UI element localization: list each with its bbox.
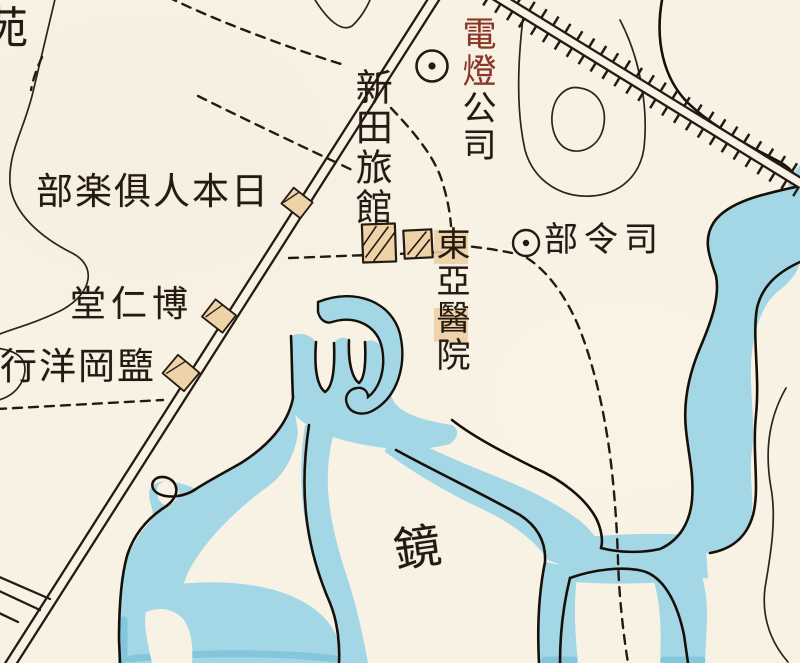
railway-embankment [488, 0, 800, 188]
label-japanese-club: 部楽俱人本日 [36, 172, 270, 211]
club-building-marker [281, 188, 312, 219]
contour-oval [552, 87, 604, 151]
label-river-name: 鏡 [391, 521, 444, 577]
label-trading-company: 行洋岡盬 [0, 347, 156, 386]
label-nitta-inn: 新田旅館 [351, 68, 390, 228]
circle-dot-marker-electric [417, 51, 448, 82]
hatched-building-small [403, 229, 432, 258]
circle-dot-marker-headquarters [513, 230, 539, 256]
label-headquarters: 部令司 [544, 222, 664, 258]
label-electric-company-red: 電燈 [456, 16, 496, 90]
label-hakujindo-pharmacy: 堂仁博 [70, 286, 193, 324]
map-canvas: 苑 部楽俱人本日 堂仁博 行洋岡盬 新田旅館 電燈公司 東亞醫院 部令司 鏡 [0, 0, 800, 663]
label-region-partial: 苑 [0, 6, 28, 53]
label-electric-company: 電燈公司 [458, 16, 494, 164]
dashed-footpaths [0, 0, 628, 663]
hatched-building-large [362, 223, 396, 262]
label-electric-company-black: 公司 [456, 90, 496, 164]
river-right-band [662, 186, 800, 555]
road-fork [0, 576, 50, 622]
label-east-asia-hospital: 東亞醫院 [432, 226, 468, 374]
